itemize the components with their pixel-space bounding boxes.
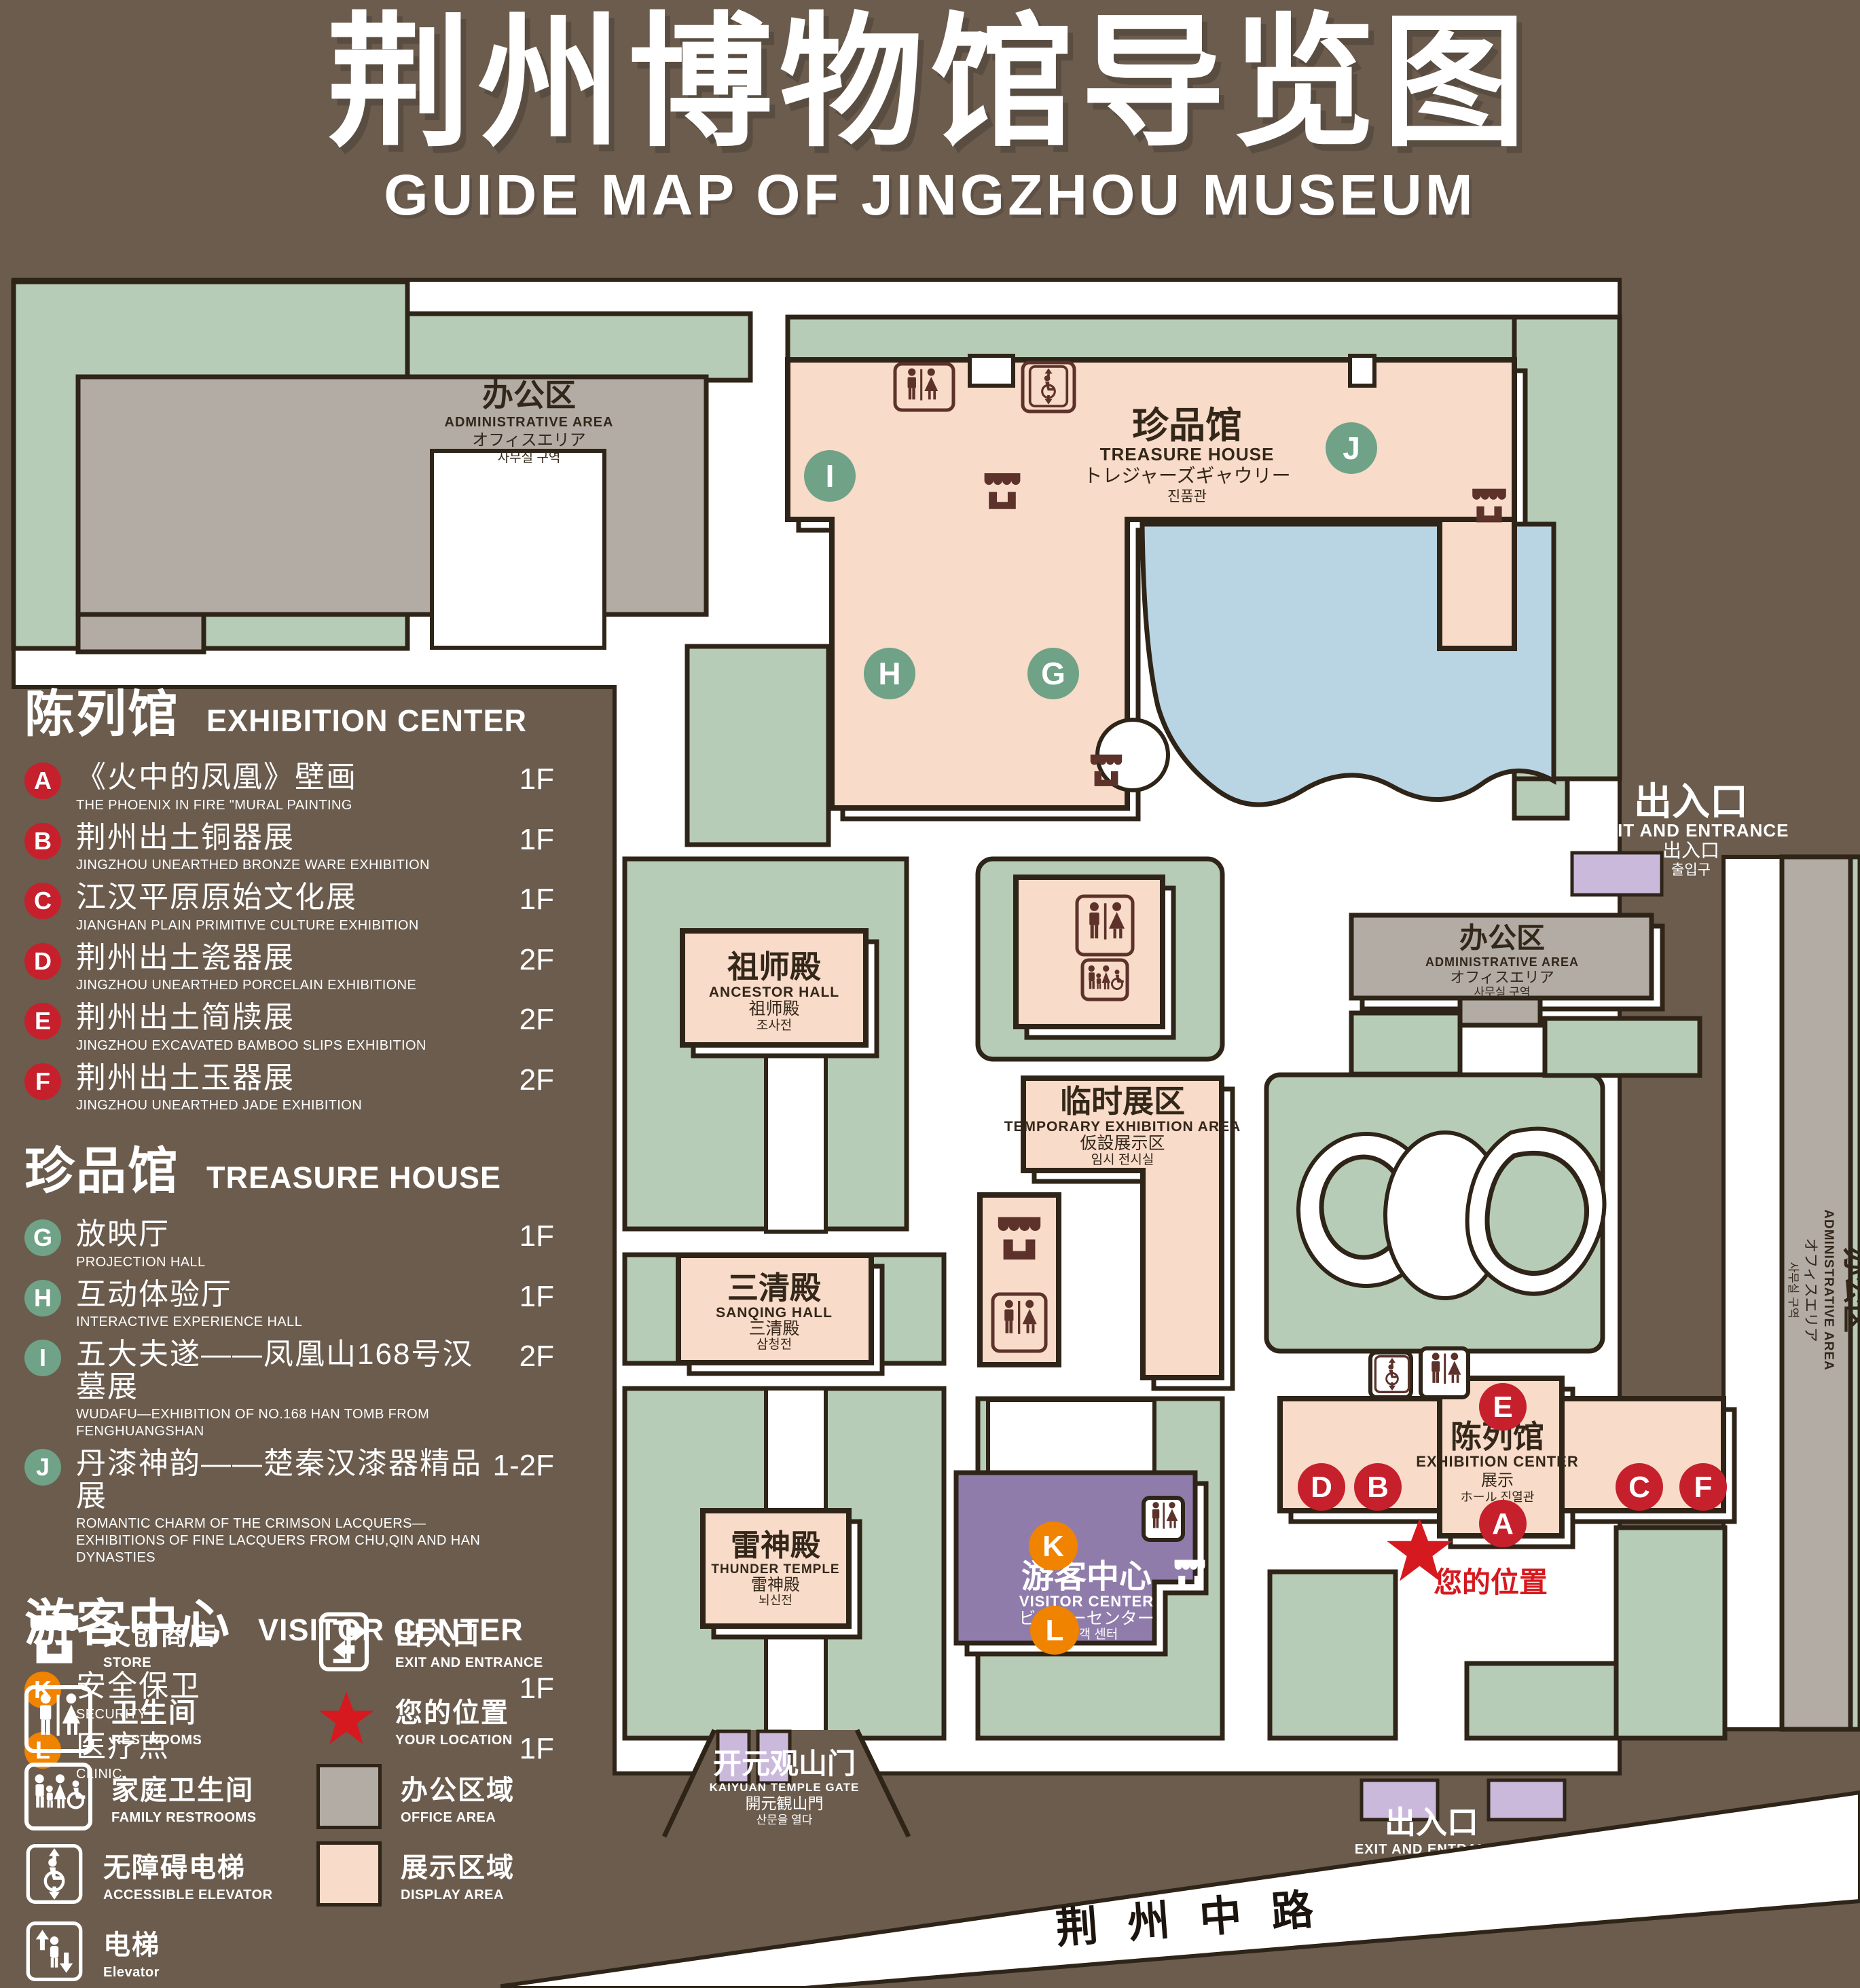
svg-text:出入口: 出入口 [1385, 1805, 1478, 1840]
section-title-en: TREASURE HOUSE [206, 1160, 501, 1196]
svg-text:トレジャーズギャウリー: トレジャーズギャウリー [1083, 465, 1290, 486]
location-icon [316, 1689, 376, 1749]
floor-label: 2F [519, 1003, 554, 1037]
svg-text:진품관: 진품관 [1167, 489, 1207, 504]
marker-f: F [1679, 1463, 1727, 1511]
restroom-icon [895, 364, 953, 410]
badge-f: F [24, 1063, 61, 1100]
svg-text:ADMINISTRATIVE AREA: ADMINISTRATIVE AREA [1821, 1209, 1836, 1371]
svg-text:G: G [1041, 656, 1065, 691]
svg-text:TREASURE HOUSE: TREASURE HOUSE [1100, 444, 1275, 464]
legend-accessible-elevator: 无障碍电梯 ACCESSIBLE ELEVATOR [24, 1840, 316, 1908]
svg-text:EXHIBITION CENTER: EXHIBITION CENTER [1416, 1453, 1578, 1470]
floor-label: 1F [519, 762, 554, 796]
garden-loops [1298, 1128, 1604, 1298]
svg-text:KAIYUAN TEMPLE GATE: KAIYUAN TEMPLE GATE [710, 1781, 860, 1794]
east-path-strip [1724, 857, 1782, 1729]
building-ancestor-hall: 祖师殿 ANCESTOR HALL 祖师殿 조사전 [682, 931, 877, 1056]
floor-label: 2F [519, 1340, 554, 1374]
legend-item-e: E 荆州出土简牍展 JINGZHOU EXCAVATED BAMBOO SLIP… [24, 1001, 595, 1054]
marker-b: B [1354, 1463, 1402, 1511]
marker-j: J [1326, 422, 1377, 474]
svg-text:K: K [1042, 1530, 1064, 1563]
legend-item-f: F 荆州出土玉器展 JINGZHOU UNEARTHED JADE EXHIBI… [24, 1062, 595, 1115]
legend-your-location: 您的位置 YOUR LOCATION [316, 1685, 608, 1753]
floor-label: 1F [519, 1219, 554, 1253]
svg-text:临时展区: 临时展区 [1060, 1084, 1185, 1119]
building-restrooms [1016, 877, 1173, 1037]
svg-text:三清殿: 三清殿 [727, 1270, 821, 1306]
building-admin-east: 办公区 ADMINISTRATIVE AREA オフィスエリア 사무실 구역 [1351, 915, 1662, 1025]
svg-text:F: F [1694, 1471, 1713, 1504]
floor-label: 1-2F [493, 1449, 554, 1483]
svg-text:D: D [1311, 1471, 1332, 1504]
exit-icon [316, 1612, 376, 1672]
building-thunder-temple: 雷神殿 THUNDER TEMPLE 雷神殿 뇌신전 [703, 1511, 860, 1637]
svg-text:뇌신전: 뇌신전 [759, 1594, 792, 1607]
marker-g: G [1027, 648, 1079, 699]
svg-text:祖师殿: 祖师殿 [727, 949, 821, 984]
svg-text:E: E [1493, 1391, 1512, 1424]
accessible-elevator-icon [24, 1844, 84, 1904]
svg-text:ADMINISTRATIVE AREA: ADMINISTRATIVE AREA [445, 415, 614, 430]
section-title-en: EXHIBITION CENTER [206, 703, 527, 739]
svg-text:办公区: 办公区 [1459, 922, 1545, 954]
legend-item-a: A 《火中的凤凰》壁画 THE PHOENIX IN FIRE "MURAL P… [24, 761, 595, 814]
elevator-icon [24, 1921, 84, 1981]
svg-text:C: C [1628, 1471, 1650, 1504]
legend-store: 文创商店 STORE [24, 1608, 316, 1676]
svg-text:H: H [878, 656, 900, 691]
svg-text:TEMPORARY EXHIBITION AREA: TEMPORARY EXHIBITION AREA [1004, 1119, 1241, 1135]
svg-text:オフィスエリア: オフィスエリア [472, 431, 586, 449]
svg-text:조사전: 조사전 [756, 1018, 792, 1033]
svg-text:I: I [826, 458, 835, 494]
badge-b: B [24, 823, 61, 860]
legend-office-area: 办公区域 OFFICE AREA [316, 1763, 608, 1830]
marker-h: H [864, 648, 915, 699]
marker-c: C [1616, 1463, 1663, 1511]
legend-exit: 出入口 EXIT AND ENTRANCE [316, 1608, 608, 1676]
svg-text:EXIT AND ENTRANCE: EXIT AND ENTRANCE [1592, 820, 1789, 841]
badge-h: H [24, 1280, 61, 1317]
legend-elevator: 电梯 Elevator [24, 1917, 316, 1985]
office-area-swatch [316, 1764, 382, 1829]
legend-restrooms: 卫生间 RESTROOMS [24, 1685, 316, 1753]
badge-i: I [24, 1340, 61, 1376]
legend-item-d: D 荆州出土瓷器展 JINGZHOU UNEARTHED PORCELAIN E… [24, 942, 595, 995]
svg-text:출입구: 출입구 [1671, 862, 1711, 878]
family-restroom-icon [1082, 960, 1127, 999]
marker-l: L [1030, 1606, 1079, 1655]
building-admin-strip: 办公区 ADMINISTRATIVE AREA オフィスエリア 사무실 구역 [1782, 857, 1860, 1729]
legend-item-j: J 丹漆神韵——楚秦汉漆器精品展 ROMANTIC CHARM OF THE C… [24, 1448, 595, 1566]
section-title-zh: 珍品馆 [24, 1130, 179, 1203]
badge-c: C [24, 883, 61, 919]
legend-item-h: H 互动体验厅 INTERACTIVE EXPERIENCE HALL 1F [24, 1278, 595, 1331]
legend-section-exhibition-center: 陈列馆 EXHIBITION CENTER [24, 674, 595, 746]
svg-text:オフィスエリア: オフィスエリア [1802, 1238, 1819, 1342]
floor-label: 1F [519, 883, 554, 917]
badge-a: A [24, 762, 61, 799]
svg-text:L: L [1046, 1614, 1064, 1647]
svg-text:사무실 구역: 사무실 구역 [1787, 1262, 1800, 1319]
svg-text:A: A [1492, 1507, 1514, 1541]
svg-text:ANCESTOR HALL: ANCESTOR HALL [709, 984, 839, 1000]
title-english: GUIDE MAP OF JINGZHOU MUSEUM [0, 162, 1860, 228]
floor-label: 2F [519, 1063, 554, 1097]
badge-e: E [24, 1003, 61, 1039]
accessible-elevator-icon [1370, 1352, 1411, 1397]
marker-d: D [1298, 1463, 1345, 1511]
family-restroom-icon [24, 1763, 92, 1830]
svg-text:仮設展示区: 仮設展示区 [1080, 1134, 1165, 1153]
guide-map-canvas: 荆州博物馆导览图 GUIDE MAP OF JINGZHOU MUSEUM [0, 0, 1860, 1988]
svg-text:展示: 展示 [1481, 1471, 1514, 1490]
marker-e: E [1479, 1383, 1527, 1431]
legend-section-treasure-house: 珍品馆 TREASURE HOUSE [24, 1130, 595, 1203]
section-title-zh: 陈列馆 [24, 674, 179, 746]
your-location-label: 您的位置 [1434, 1566, 1548, 1598]
svg-text:三清殿: 三清殿 [748, 1319, 799, 1338]
restroom-icon [993, 1294, 1046, 1351]
restroom-icon [24, 1685, 92, 1753]
elevator-icon [1023, 363, 1074, 411]
svg-text:祖师殿: 祖师殿 [748, 999, 799, 1018]
svg-text:SANQING HALL: SANQING HALL [716, 1305, 833, 1321]
svg-text:J: J [1343, 430, 1360, 466]
svg-text:임시 전시실: 임시 전시실 [1091, 1152, 1154, 1167]
restroom-icon [1077, 896, 1133, 955]
legend-item-c: C 江汉平原原始文化展 JIANGHAN PLAIN PRIMITIVE CUL… [24, 881, 595, 934]
floor-label: 1F [519, 1280, 554, 1314]
restroom-icon [1421, 1348, 1468, 1397]
svg-text:ADMINISTRATIVE AREA: ADMINISTRATIVE AREA [1425, 955, 1579, 969]
svg-text:삼청전: 삼청전 [756, 1337, 792, 1352]
display-area-swatch [316, 1841, 382, 1907]
svg-text:VISITOR CENTER: VISITOR CENTER [1019, 1593, 1154, 1610]
legend-family-restrooms: 家庭卫生间 FAMILY RESTROOMS [24, 1763, 316, 1830]
svg-text:珍品馆: 珍品馆 [1132, 405, 1242, 446]
marker-k: K [1029, 1522, 1078, 1570]
svg-text:산문을 열다: 산문을 열다 [756, 1814, 813, 1826]
building-sanqing-hall: 三清殿 SANQING HALL 三清殿 삼청전 [678, 1255, 882, 1374]
badge-d: D [24, 943, 61, 980]
restroom-icon [1144, 1498, 1183, 1540]
floor-label: 1F [519, 823, 554, 857]
legend-display-area: 展示区域 DISPLAY AREA [316, 1840, 608, 1908]
store-icon [24, 1612, 84, 1672]
svg-text:사무실 구역: 사무실 구역 [498, 450, 561, 465]
building-admin-nw: 办公区 ADMINISTRATIVE AREA オフィスエリア 사무실 구역 [78, 377, 706, 652]
svg-text:B: B [1367, 1471, 1389, 1504]
svg-text:办公区: 办公区 [482, 378, 576, 413]
marker-a: A [1479, 1500, 1527, 1547]
floor-label: 2F [519, 943, 554, 977]
legend-item-g: G 放映厅 PROJECTION HALL 1F [24, 1218, 595, 1271]
svg-text:開元観山門: 開元観山門 [746, 1794, 824, 1812]
badge-g: G [24, 1219, 61, 1256]
svg-text:开元观山门: 开元观山门 [713, 1748, 856, 1780]
badge-j: J [24, 1449, 61, 1486]
marker-i: I [804, 450, 856, 502]
svg-text:雷神殿: 雷神殿 [731, 1529, 820, 1562]
svg-text:THUNDER TEMPLE: THUNDER TEMPLE [711, 1562, 839, 1577]
svg-text:オフィスエリア: オフィスエリア [1450, 969, 1554, 986]
legend-item-b: B 荆州出土铜器展 JINGZHOU UNEARTHED BRONZE WARE… [24, 822, 595, 875]
page-title: 荆州博物馆导览图 GUIDE MAP OF JINGZHOU MUSEUM [0, 5, 1860, 228]
title-chinese: 荆州博物馆导览图 [0, 5, 1860, 161]
svg-text:出入口: 出入口 [1634, 780, 1748, 823]
svg-text:办公区: 办公区 [1840, 1247, 1860, 1333]
svg-text:出入口: 出入口 [1662, 840, 1719, 861]
legend-symbols: 文创商店 STORE 出入口 EXIT AND ENTRANCE 卫生间 RES… [24, 1608, 608, 1985]
legend-item-i: I 五大夫遂——凤凰山168号汉墓展 WUDAFU—EXHIBITION OF … [24, 1338, 595, 1440]
svg-text:雷神殿: 雷神殿 [751, 1576, 800, 1594]
svg-text:사무실 구역: 사무실 구역 [1474, 986, 1531, 999]
